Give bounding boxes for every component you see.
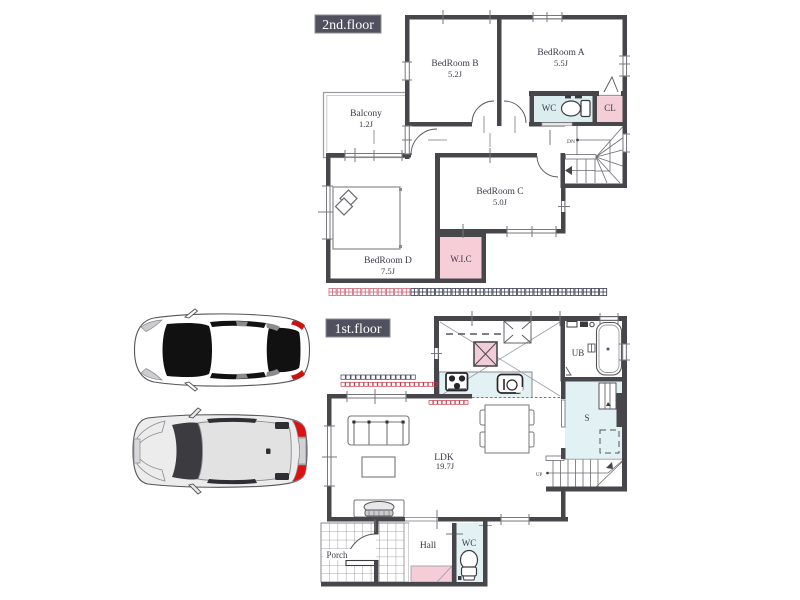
svg-text:5.2J: 5.2J: [448, 69, 463, 79]
svg-text:7.5J: 7.5J: [381, 266, 396, 276]
svg-text:BedRoom B: BedRoom B: [431, 59, 478, 69]
svg-text:19.7J: 19.7J: [436, 461, 455, 471]
svg-text:Hall: Hall: [420, 541, 437, 551]
svg-text:DN: DN: [567, 139, 575, 145]
svg-text:1st.floor: 1st.floor: [334, 322, 381, 337]
svg-text:CL: CL: [604, 103, 616, 113]
svg-text:2nd.floor: 2nd.floor: [322, 18, 374, 33]
svg-text:5.0J: 5.0J: [493, 197, 508, 207]
svg-text:Porch: Porch: [327, 550, 348, 560]
svg-text:Balcony: Balcony: [350, 109, 382, 119]
svg-text:WC: WC: [542, 103, 557, 113]
svg-text:UB: UB: [572, 348, 585, 358]
svg-text:W.I.C: W.I.C: [450, 254, 471, 264]
svg-text:S: S: [584, 413, 589, 423]
svg-text:1.2J: 1.2J: [359, 119, 374, 129]
svg-text:BedRoom A: BedRoom A: [537, 48, 584, 58]
svg-text:BedRoom D: BedRoom D: [364, 256, 412, 266]
svg-text:5.5J: 5.5J: [554, 58, 569, 68]
svg-text:BedRoom C: BedRoom C: [476, 187, 523, 197]
svg-text:UP: UP: [536, 473, 543, 478]
svg-text:WC: WC: [462, 538, 477, 548]
